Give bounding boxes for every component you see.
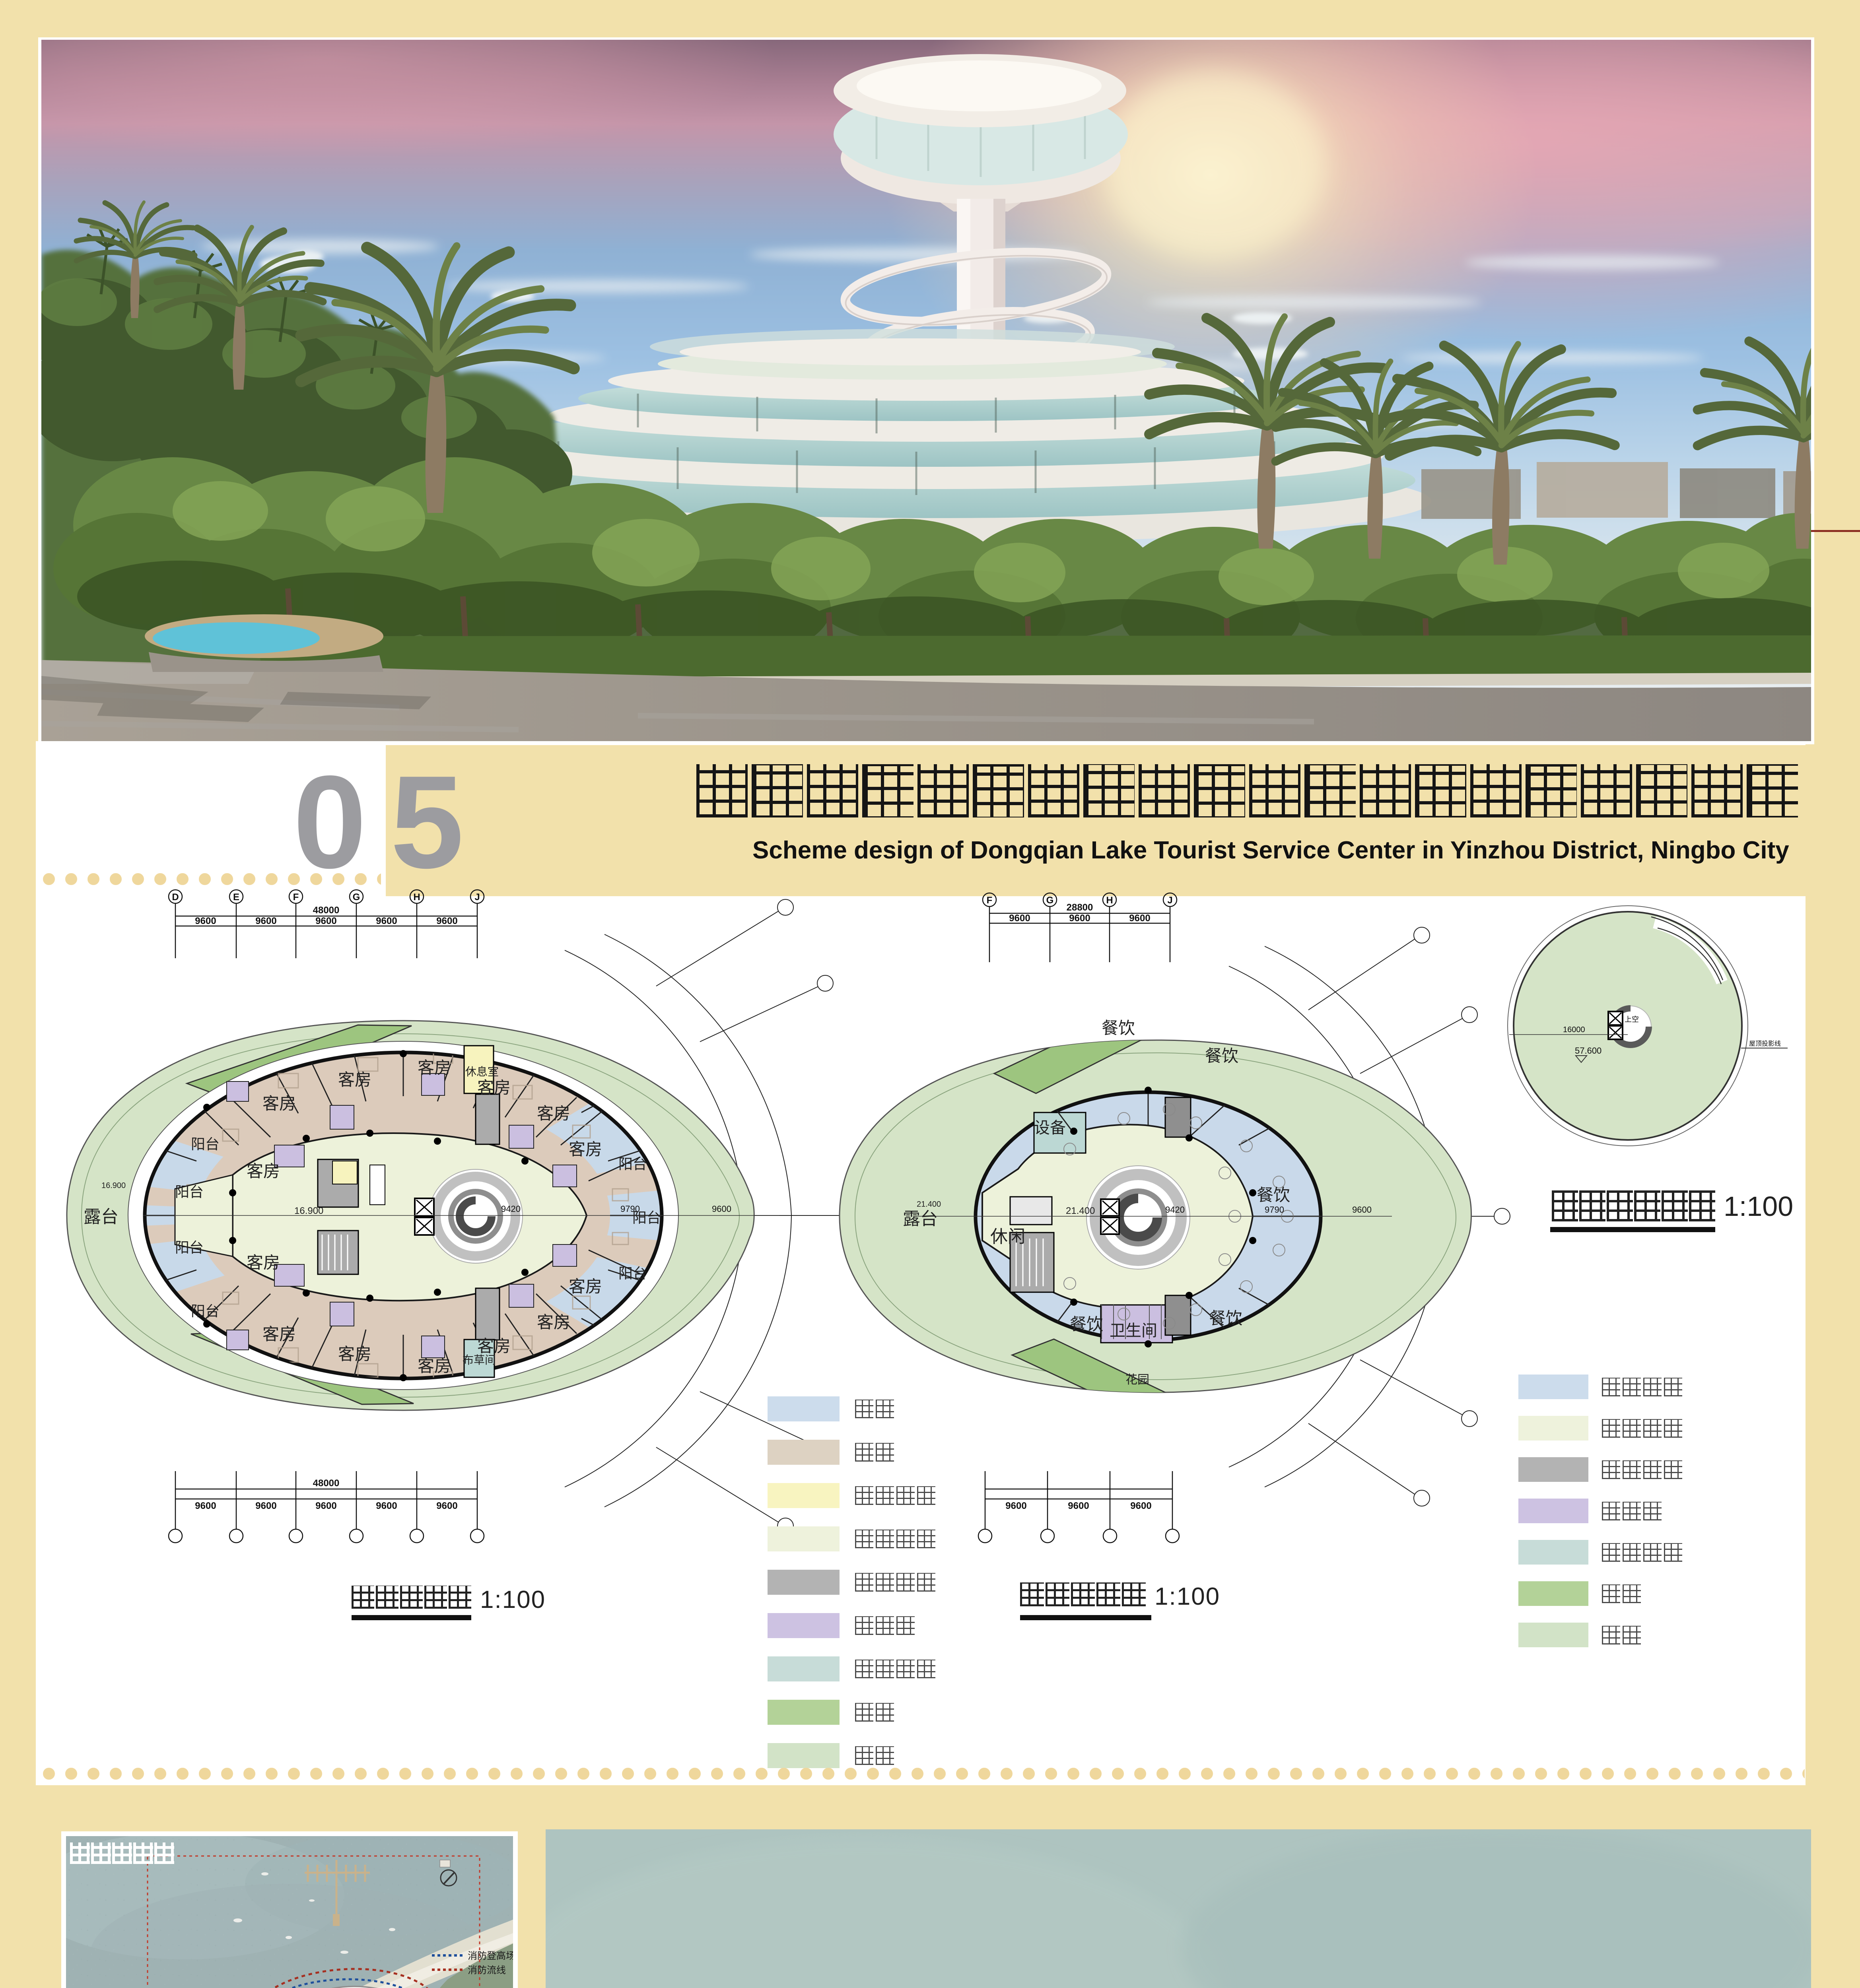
svg-text:9420: 9420 xyxy=(1165,1205,1185,1215)
svg-text:9600: 9600 xyxy=(436,1501,457,1511)
svg-text:设备: 设备 xyxy=(1034,1119,1066,1137)
svg-text:J: J xyxy=(474,892,480,903)
svg-text:休息室: 休息室 xyxy=(465,1066,499,1078)
svg-text:客房: 客房 xyxy=(477,1078,511,1097)
svg-text:餐饮: 餐饮 xyxy=(1257,1186,1290,1204)
svg-text:餐饮: 餐饮 xyxy=(1209,1309,1242,1328)
svg-text:阳台: 阳台 xyxy=(632,1209,661,1226)
svg-text:16000: 16000 xyxy=(1563,1025,1585,1034)
svg-text:客房: 客房 xyxy=(537,1313,570,1332)
svg-text:9600: 9600 xyxy=(1005,1501,1026,1511)
svg-text:48000: 48000 xyxy=(313,905,340,916)
svg-text:9600: 9600 xyxy=(1069,913,1090,924)
svg-text:阳台: 阳台 xyxy=(191,1136,220,1152)
svg-text:9600: 9600 xyxy=(195,916,216,926)
svg-text:E: E xyxy=(233,892,239,903)
svg-text:客房: 客房 xyxy=(418,1357,451,1375)
svg-text:消防登高场地: 消防登高场地 xyxy=(468,1951,513,1961)
svg-text:21.400: 21.400 xyxy=(917,1200,941,1209)
svg-text:客房: 客房 xyxy=(262,1325,296,1343)
svg-text:9600: 9600 xyxy=(712,1204,731,1214)
svg-text:客房: 客房 xyxy=(338,1070,371,1089)
svg-text:H: H xyxy=(1106,895,1113,906)
svg-text:休闲: 休闲 xyxy=(990,1227,1025,1246)
svg-text:9600: 9600 xyxy=(436,916,457,926)
svg-text:客房: 客房 xyxy=(338,1345,371,1363)
svg-text:餐饮: 餐饮 xyxy=(1205,1046,1238,1065)
svg-text:阳台: 阳台 xyxy=(175,1239,204,1256)
svg-text:客房: 客房 xyxy=(537,1104,570,1123)
svg-text:9600: 9600 xyxy=(1129,913,1150,924)
svg-text:9790: 9790 xyxy=(1265,1205,1284,1215)
svg-text:F: F xyxy=(293,892,299,903)
svg-text:露台: 露台 xyxy=(903,1209,938,1229)
svg-text:客房: 客房 xyxy=(247,1162,280,1180)
svg-text:F: F xyxy=(987,895,993,906)
svg-text:9600: 9600 xyxy=(315,916,336,926)
svg-text:屋顶投影线: 屋顶投影线 xyxy=(1749,1040,1781,1047)
svg-text:21.400: 21.400 xyxy=(1066,1206,1095,1216)
svg-text:9600: 9600 xyxy=(1009,913,1030,924)
svg-text:48000: 48000 xyxy=(313,1478,340,1489)
svg-text:G: G xyxy=(1046,895,1054,906)
svg-text:客房: 客房 xyxy=(569,1277,602,1296)
svg-text:9600: 9600 xyxy=(315,1501,336,1511)
svg-text:客房: 客房 xyxy=(247,1253,280,1272)
svg-text:消防流线: 消防流线 xyxy=(468,1965,506,1976)
svg-text:阳台: 阳台 xyxy=(618,1265,647,1281)
svg-text:9600: 9600 xyxy=(255,916,276,926)
svg-text:9600: 9600 xyxy=(255,1501,276,1511)
svg-text:花园: 花园 xyxy=(1125,1373,1149,1386)
svg-text:布草间: 布草间 xyxy=(463,1354,496,1366)
svg-text:露台: 露台 xyxy=(84,1207,119,1227)
svg-text:9600: 9600 xyxy=(376,916,397,926)
svg-text:28800: 28800 xyxy=(1067,902,1093,913)
svg-text:客房: 客房 xyxy=(262,1094,296,1113)
svg-text:阳台: 阳台 xyxy=(191,1303,220,1319)
svg-text:16.900: 16.900 xyxy=(294,1206,323,1216)
svg-text:阳台: 阳台 xyxy=(175,1184,204,1200)
svg-text:阳台: 阳台 xyxy=(618,1156,647,1172)
svg-text:餐饮: 餐饮 xyxy=(1102,1019,1135,1037)
svg-text:57.600: 57.600 xyxy=(1575,1046,1602,1056)
svg-text:上空: 上空 xyxy=(1625,1015,1639,1023)
svg-text:餐饮: 餐饮 xyxy=(1070,1315,1103,1334)
svg-text:卫生间: 卫生间 xyxy=(1110,1322,1157,1340)
svg-text:9600: 9600 xyxy=(376,1501,397,1511)
svg-text:16.900: 16.900 xyxy=(101,1181,126,1190)
svg-text:G: G xyxy=(353,892,360,903)
svg-text:客房: 客房 xyxy=(569,1140,602,1159)
svg-text:9600: 9600 xyxy=(1130,1501,1151,1511)
svg-text:9600: 9600 xyxy=(195,1501,216,1511)
svg-text:9420: 9420 xyxy=(501,1204,521,1214)
svg-text:9600: 9600 xyxy=(1068,1501,1089,1511)
svg-text:9600: 9600 xyxy=(1352,1205,1372,1215)
svg-text:客房: 客房 xyxy=(418,1058,451,1077)
svg-text:D: D xyxy=(172,892,179,903)
svg-text:J: J xyxy=(1167,895,1172,906)
svg-text:客房: 客房 xyxy=(477,1337,511,1355)
svg-text:H: H xyxy=(413,892,420,903)
